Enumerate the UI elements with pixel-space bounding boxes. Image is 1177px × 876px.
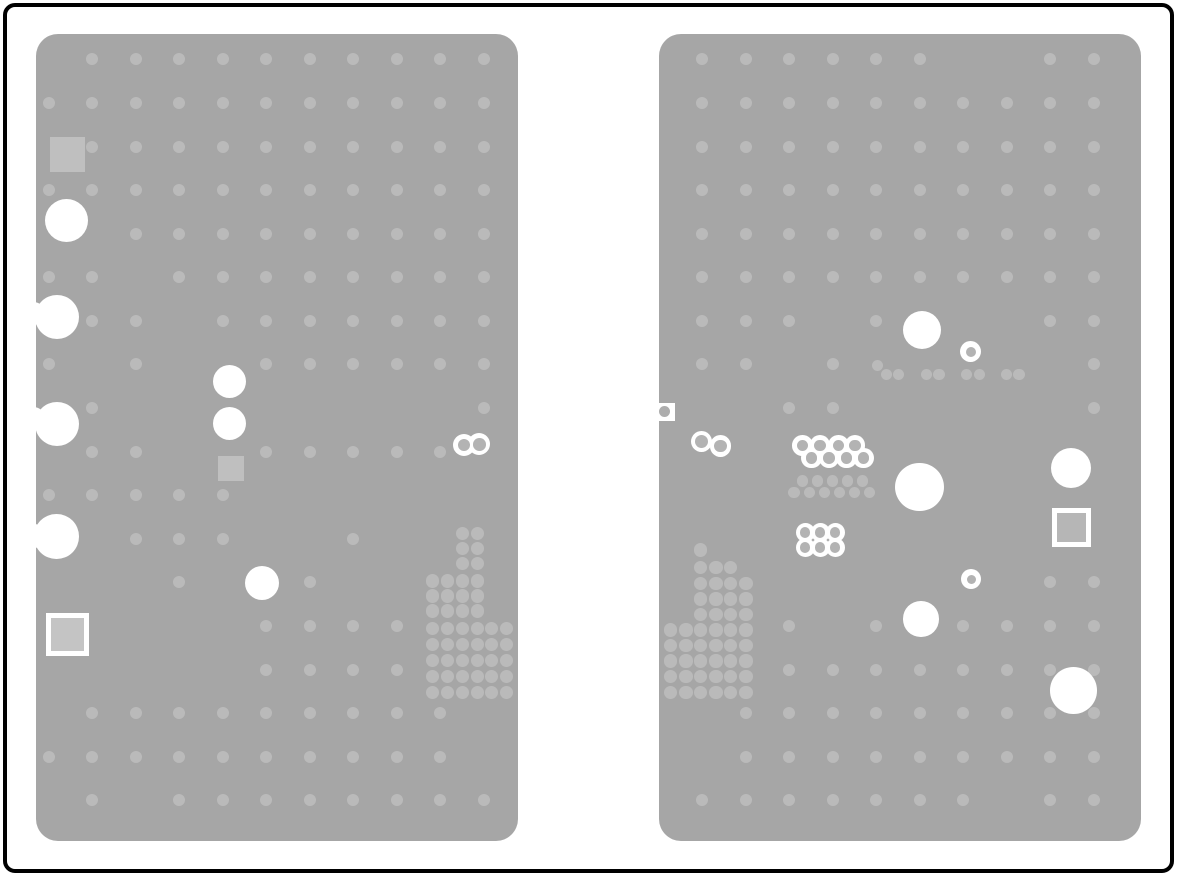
drill-clearance-circle [22,407,45,430]
cluster-via-dot [456,670,469,683]
grid-via-dot [914,707,926,719]
grid-via-dot [740,97,752,109]
grid-via-dot [696,141,708,153]
grid-via-dot [217,184,229,196]
small-via-dot [788,487,799,498]
grid-via-dot [478,53,490,65]
pcb-plane-left [36,34,518,841]
grid-via-dot [1044,315,1056,327]
grid-via-dot [1044,664,1056,676]
cluster-via-dot [441,604,454,617]
grid-via-dot [827,664,839,676]
grid-via-dot [347,315,359,327]
cluster-via-dot [739,654,752,667]
grid-via-dot [130,315,142,327]
grid-via-dot [740,315,752,327]
grid-via-dot [130,751,142,763]
drill-clearance-circle [245,566,279,600]
cluster-via-dot [709,654,722,667]
grid-via-dot [260,315,272,327]
cluster-via-dot [679,639,692,652]
grid-via-dot [827,228,839,240]
grid-via-dot [914,97,926,109]
cluster-via-dot [739,608,752,621]
grid-via-dot [827,707,839,719]
grid-via-dot [740,271,752,283]
grid-via-dot [783,751,795,763]
grid-via-dot [347,533,359,545]
grid-via-dot [870,315,882,327]
grid-via-dot [260,620,272,632]
grid-via-dot [478,228,490,240]
cluster-via-dot [426,589,439,602]
grid-via-dot [957,141,969,153]
cluster-via-dot [500,686,513,699]
grid-via-dot [260,97,272,109]
cluster-via-dot [709,670,722,683]
cluster-via-dot [739,686,752,699]
grid-via-dot [304,794,316,806]
cluster-via-dot [456,686,469,699]
grid-via-dot [304,446,316,458]
cluster-via-dot [426,604,439,617]
grid-via-dot [957,664,969,676]
grid-via-dot [217,228,229,240]
grid-via-dot [391,358,403,370]
grid-via-dot [260,664,272,676]
grid-via-dot [391,271,403,283]
via-ring-core [815,542,826,553]
cluster-via-dot [500,654,513,667]
drill-clearance-circle [1051,448,1091,488]
via-ring-core [800,542,811,553]
grid-via-dot [870,141,882,153]
grid-via-dot [827,794,839,806]
cluster-via-dot [709,577,722,590]
grid-via-dot [347,228,359,240]
grid-via-dot [1001,184,1013,196]
grid-via-dot [304,53,316,65]
grid-via-dot [391,184,403,196]
small-via-dot [797,475,808,486]
grid-via-dot [914,141,926,153]
grid-via-dot [740,707,752,719]
grid-via-dot [1001,664,1013,676]
grid-via-dot [304,751,316,763]
grid-via-dot [217,271,229,283]
grid-via-dot [1001,751,1013,763]
cluster-via-dot [664,623,677,636]
grid-via-dot [173,141,185,153]
grid-via-dot [130,228,142,240]
cluster-via-dot [739,592,752,605]
cluster-via-dot [471,654,484,667]
grid-via-dot [304,271,316,283]
grid-via-dot [740,141,752,153]
grid-via-dot [260,751,272,763]
drill-clearance-circle [1050,667,1097,714]
cluster-via-dot [426,574,439,587]
grid-via-dot [1044,751,1056,763]
grid-via-dot [391,620,403,632]
grid-via-dot [478,315,490,327]
cluster-via-dot [679,623,692,636]
cluster-via-dot [456,654,469,667]
grid-via-dot [86,446,98,458]
grid-via-dot [696,315,708,327]
grid-via-dot [260,141,272,153]
pcb-plane-right [659,34,1141,841]
cluster-via-dot [664,654,677,667]
grid-via-dot [827,751,839,763]
cluster-via-dot [694,623,707,636]
grid-via-dot [391,707,403,719]
grid-via-dot [914,794,926,806]
small-via-dot [1013,369,1024,380]
cluster-via-dot [441,574,454,587]
grid-via-dot [914,271,926,283]
cluster-via-dot [724,592,737,605]
grid-via-dot [478,97,490,109]
cluster-via-dot [709,608,722,621]
cluster-via-dot [709,592,722,605]
grid-via-dot [391,228,403,240]
grid-via-dot [870,751,882,763]
grid-via-dot [217,315,229,327]
cluster-via-dot [471,574,484,587]
grid-via-dot [130,358,142,370]
grid-via-dot [827,53,839,65]
grid-via-dot [1088,228,1100,240]
grid-via-dot [304,228,316,240]
pad-square [50,137,85,172]
grid-via-dot [304,358,316,370]
cluster-via-dot [709,686,722,699]
cluster-via-dot [739,639,752,652]
grid-via-dot [130,707,142,719]
cluster-via-dot [739,623,752,636]
cluster-via-dot [739,670,752,683]
grid-via-dot [1044,141,1056,153]
cluster-via-dot [694,592,707,605]
grid-via-dot [783,228,795,240]
grid-via-dot [740,794,752,806]
grid-via-dot [130,533,142,545]
grid-via-dot [1088,620,1100,632]
cluster-via-dot [679,670,692,683]
grid-via-dot [783,315,795,327]
grid-via-dot [391,97,403,109]
small-via-dot [933,369,944,380]
outlined-pad-square [1052,508,1091,548]
cluster-via-dot [709,639,722,652]
grid-via-dot [1001,97,1013,109]
cluster-via-dot [694,654,707,667]
grid-via-dot [478,794,490,806]
grid-via-dot [914,751,926,763]
grid-via-dot [173,228,185,240]
grid-via-dot [1088,97,1100,109]
grid-via-dot [304,707,316,719]
grid-via-dot [478,358,490,370]
cluster-via-dot [456,589,469,602]
grid-via-dot [391,315,403,327]
grid-via-dot [43,271,55,283]
grid-via-dot [434,141,446,153]
grid-via-dot [740,751,752,763]
grid-via-dot [43,358,55,370]
grid-via-dot [1044,228,1056,240]
cluster-via-dot [471,527,484,540]
cluster-via-dot [471,589,484,602]
cluster-via-dot [724,654,737,667]
grid-via-dot [478,141,490,153]
grid-via-dot [827,97,839,109]
grid-via-dot [86,97,98,109]
cluster-via-dot [709,623,722,636]
grid-via-dot [217,489,229,501]
grid-via-dot [347,141,359,153]
grid-via-dot [391,794,403,806]
grid-via-dot [391,53,403,65]
grid-via-dot [914,664,926,676]
cluster-via-dot [724,623,737,636]
grid-via-dot [957,751,969,763]
via-ring-core [966,347,976,357]
grid-via-dot [1088,794,1100,806]
grid-via-dot [130,184,142,196]
grid-via-dot [173,751,185,763]
grid-via-dot [304,184,316,196]
grid-via-dot [478,271,490,283]
grid-via-dot [347,664,359,676]
grid-via-dot [783,664,795,676]
cluster-via-dot [456,574,469,587]
cluster-via-dot [739,577,752,590]
grid-via-dot [347,620,359,632]
grid-via-dot [1088,315,1100,327]
grid-via-dot [827,184,839,196]
via-ring-core [806,452,818,464]
grid-via-dot [827,271,839,283]
grid-via-dot [434,315,446,327]
cluster-via-dot [679,654,692,667]
grid-via-dot [1088,184,1100,196]
grid-via-dot [391,141,403,153]
small-via-dot [842,475,853,486]
grid-via-dot [391,664,403,676]
pcb-layer-canvas [0,0,1177,876]
via-ring-core [841,452,853,464]
grid-via-dot [783,141,795,153]
grid-via-dot [391,446,403,458]
grid-via-dot [86,315,98,327]
cluster-via-dot [441,589,454,602]
small-via-dot [893,369,904,380]
grid-via-dot [914,228,926,240]
via-ring-core [967,575,976,584]
grid-via-dot [217,707,229,719]
grid-via-dot [260,446,272,458]
grid-via-dot [914,184,926,196]
grid-via-dot [217,533,229,545]
grid-via-dot [304,620,316,632]
grid-via-dot [304,576,316,588]
grid-via-dot [1088,271,1100,283]
grid-via-dot [304,664,316,676]
grid-via-dot [130,53,142,65]
grid-via-dot [130,489,142,501]
outlined-pad-square [46,613,89,656]
cluster-via-dot [471,670,484,683]
cluster-via-dot [471,557,484,570]
grid-via-dot [1088,402,1100,414]
small-via-dot [974,369,985,380]
grid-via-dot [347,97,359,109]
cluster-via-dot [471,604,484,617]
grid-via-dot [130,141,142,153]
grid-via-dot [740,228,752,240]
drill-clearance-circle [903,311,941,349]
grid-via-dot [1001,228,1013,240]
grid-via-dot [173,533,185,545]
grid-via-dot [740,53,752,65]
small-via-dot [827,475,838,486]
drill-clearance-circle [903,601,938,636]
via-ring-core [823,452,835,464]
grid-via-dot [870,664,882,676]
cluster-via-dot [694,543,707,556]
cluster-via-dot [500,670,513,683]
grid-via-dot [434,446,446,458]
grid-via-dot [260,228,272,240]
grid-via-dot [217,794,229,806]
grid-via-dot [827,402,839,414]
grid-via-dot [1088,707,1100,719]
grid-via-dot [957,228,969,240]
grid-via-dot [1088,53,1100,65]
grid-via-dot [130,446,142,458]
grid-via-dot [434,228,446,240]
grid-via-dot [43,751,55,763]
small-via-dot [812,475,823,486]
cluster-via-dot [456,604,469,617]
cluster-via-dot [709,561,722,574]
grid-via-dot [1088,751,1100,763]
drill-clearance-circle [22,524,46,548]
grid-via-dot [217,141,229,153]
grid-via-dot [217,53,229,65]
grid-via-dot [130,97,142,109]
grid-via-dot [304,97,316,109]
grid-via-dot [86,141,98,153]
drill-clearance-circle [22,302,45,325]
grid-via-dot [43,97,55,109]
grid-via-dot [478,402,490,414]
grid-via-dot [347,446,359,458]
grid-via-dot [86,751,98,763]
small-via-dot [857,475,868,486]
drill-clearance-circle [895,463,944,512]
grid-via-dot [434,97,446,109]
cluster-via-dot [679,686,692,699]
grid-via-dot [347,751,359,763]
grid-via-dot [740,184,752,196]
grid-via-dot [304,141,316,153]
grid-via-dot [391,751,403,763]
grid-via-dot [217,97,229,109]
grid-via-dot [1001,141,1013,153]
grid-via-dot [434,751,446,763]
grid-via-dot [1001,620,1013,632]
grid-via-dot [696,228,708,240]
grid-via-dot [478,184,490,196]
grid-via-dot [1001,707,1013,719]
grid-via-dot [870,228,882,240]
grid-via-dot [304,315,316,327]
grid-via-dot [1088,141,1100,153]
grid-via-dot [43,489,55,501]
via-ring-core [830,542,841,553]
grid-via-dot [827,141,839,153]
cluster-via-dot [441,670,454,683]
grid-via-dot [1001,271,1013,283]
cluster-via-dot [456,527,469,540]
grid-via-dot [217,751,229,763]
pad-square [218,456,244,481]
grid-via-dot [43,184,55,196]
grid-via-dot [914,53,926,65]
via-ring-core [473,438,486,451]
cluster-via-dot [471,542,484,555]
drill-clearance-circle [45,199,88,242]
cluster-via-dot [471,686,484,699]
grid-via-dot [173,97,185,109]
